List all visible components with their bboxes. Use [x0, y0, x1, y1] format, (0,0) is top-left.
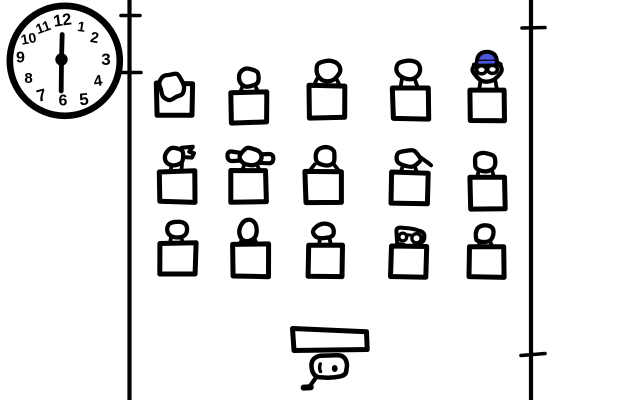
- svg-text:12: 12: [52, 10, 73, 30]
- svg-text:8: 8: [24, 70, 32, 87]
- svg-text:10: 10: [19, 29, 37, 47]
- svg-text:9: 9: [16, 50, 25, 67]
- svg-text:3: 3: [101, 50, 110, 69]
- svg-text:5: 5: [78, 90, 89, 110]
- svg-text:6: 6: [59, 93, 68, 110]
